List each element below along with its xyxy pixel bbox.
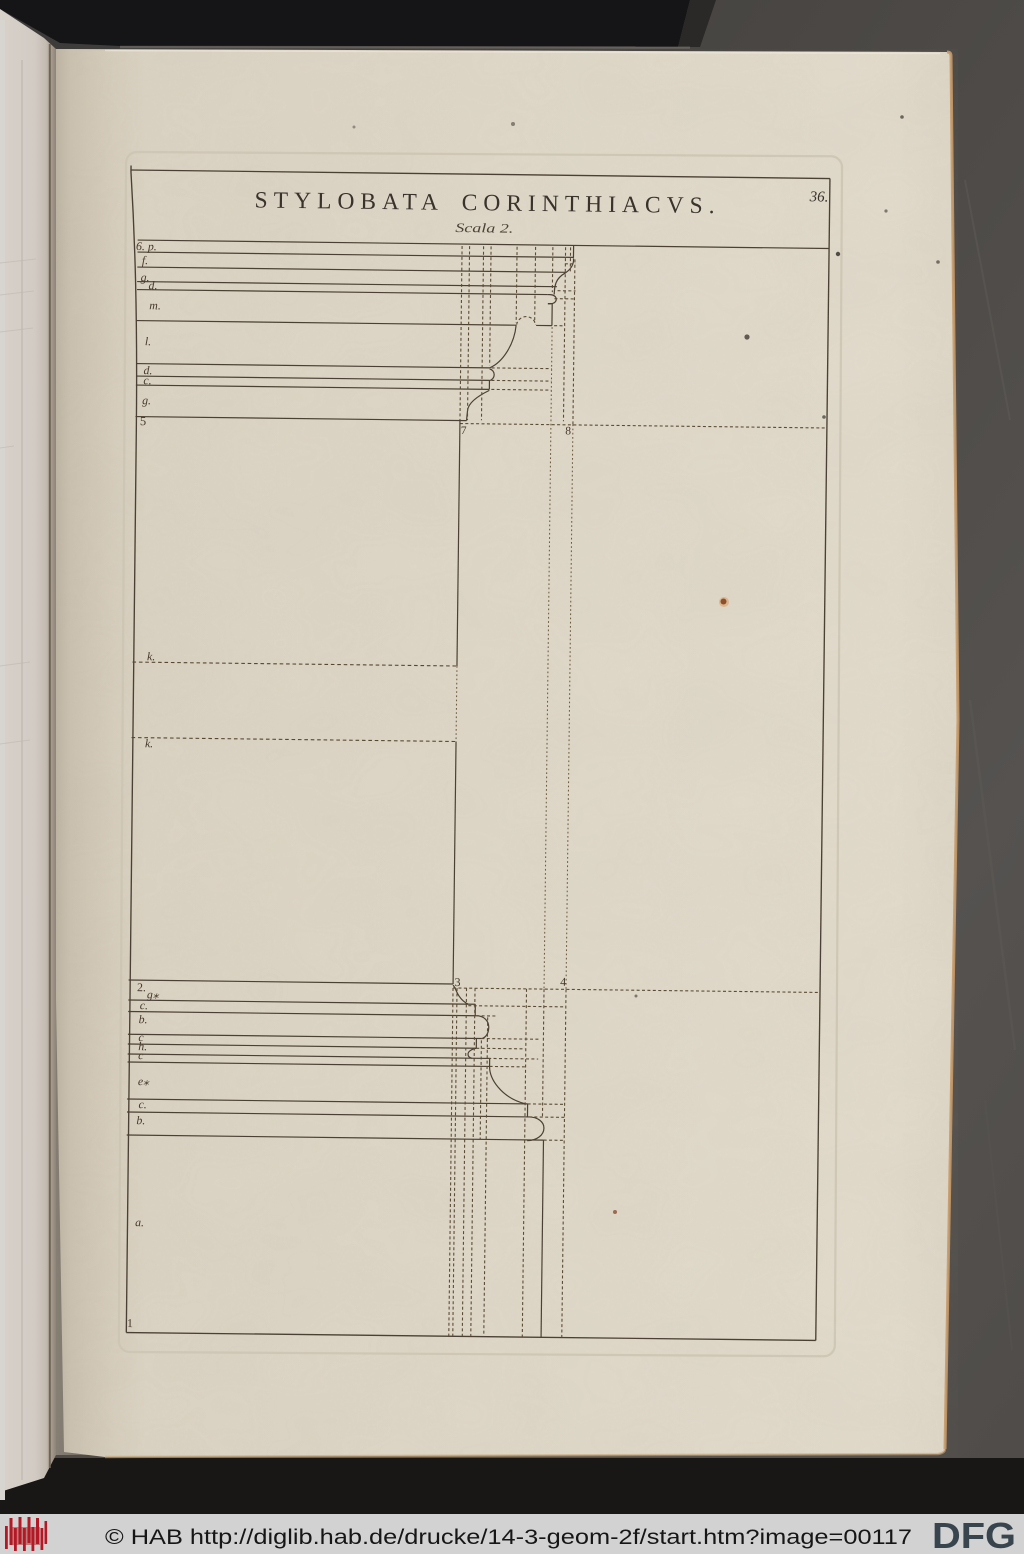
svg-text:6. p.: 6. p. <box>136 239 157 253</box>
svg-text:DFG: DFG <box>932 1515 1016 1554</box>
svg-text:8: 8 <box>565 425 571 437</box>
svg-text:b.: b. <box>136 1113 145 1127</box>
svg-text:b.: b. <box>139 1012 148 1026</box>
svg-text:m.: m. <box>149 298 161 312</box>
svg-text:c: c <box>138 1048 144 1062</box>
svg-text:7: 7 <box>461 425 467 437</box>
svg-text:g⁎: g⁎ <box>147 987 160 1001</box>
svg-text:4: 4 <box>560 975 566 989</box>
svg-text:© HAB http://diglib.hab.de/dru: © HAB http://diglib.hab.de/drucke/14-3-g… <box>105 1525 912 1549</box>
svg-text:Scala 2.: Scala 2. <box>455 220 513 236</box>
svg-text:d.: d. <box>149 278 158 292</box>
svg-text:k.: k. <box>147 649 155 663</box>
svg-text:36.: 36. <box>809 189 829 205</box>
svg-text:a.: a. <box>135 1215 144 1229</box>
svg-text:3: 3 <box>455 975 461 989</box>
svg-text:f.: f. <box>142 253 148 267</box>
svg-text:c.: c. <box>140 998 148 1012</box>
svg-text:e⁎: e⁎ <box>138 1074 150 1088</box>
svg-text:5: 5 <box>140 414 146 428</box>
svg-text:l.: l. <box>145 334 151 348</box>
svg-text:g.: g. <box>142 393 151 407</box>
svg-text:k.: k. <box>145 736 153 750</box>
svg-text:2.: 2. <box>137 980 146 994</box>
svg-text:c.: c. <box>143 373 151 387</box>
svg-text:c.: c. <box>139 1097 147 1111</box>
svg-text:1: 1 <box>127 1316 133 1330</box>
